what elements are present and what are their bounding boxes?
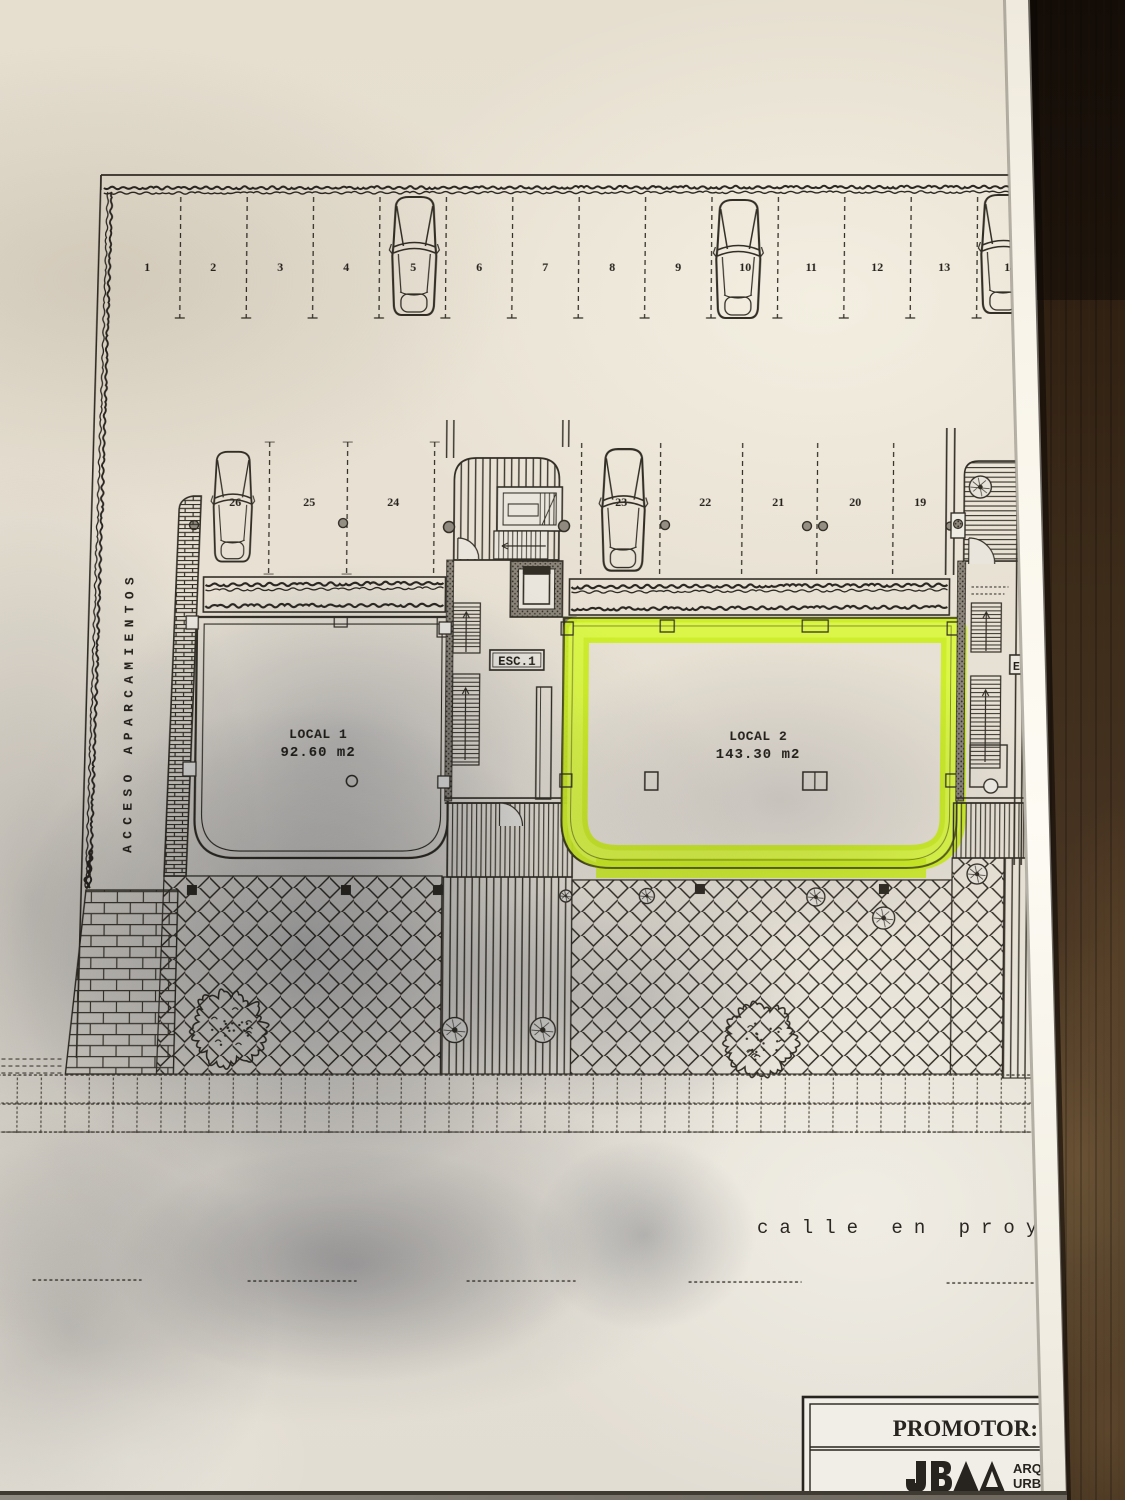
svg-text:13: 13 xyxy=(938,260,950,274)
svg-text:8: 8 xyxy=(609,260,615,274)
svg-text:26: 26 xyxy=(229,495,241,509)
svg-text:12: 12 xyxy=(871,260,883,274)
svg-text:1: 1 xyxy=(144,260,150,274)
svg-text:7: 7 xyxy=(542,260,548,274)
svg-text:ES: ES xyxy=(1013,660,1028,674)
svg-text:92.60 m2: 92.60 m2 xyxy=(280,745,355,761)
svg-text:143.30 m2: 143.30 m2 xyxy=(716,747,801,763)
svg-text:9: 9 xyxy=(675,260,681,274)
svg-text:calle en proy: calle en proy xyxy=(757,1217,1048,1239)
svg-text:25: 25 xyxy=(303,495,315,509)
svg-text:LOCAL 2: LOCAL 2 xyxy=(729,729,787,744)
svg-text:22: 22 xyxy=(699,495,711,509)
svg-text:2: 2 xyxy=(210,260,216,274)
svg-text:5: 5 xyxy=(410,260,416,274)
svg-text:URBAI: URBAI xyxy=(1013,1476,1054,1491)
svg-text:4: 4 xyxy=(343,260,349,274)
svg-text:3: 3 xyxy=(277,260,283,274)
svg-text:19: 19 xyxy=(914,495,926,509)
svg-text:14: 14 xyxy=(1004,260,1016,274)
svg-text:6: 6 xyxy=(476,260,482,274)
svg-text:PROMOTOR:: PROMOTOR: xyxy=(893,1416,1038,1441)
svg-text:21: 21 xyxy=(772,495,784,509)
svg-text:ACCESO APARCAMIENTOS: ACCESO APARCAMIENTOS xyxy=(120,571,137,853)
svg-text:10: 10 xyxy=(739,260,751,274)
svg-text:24: 24 xyxy=(387,495,399,509)
svg-text:ARQUI: ARQUI xyxy=(1013,1461,1055,1476)
svg-text:ESC.1: ESC.1 xyxy=(498,655,536,669)
svg-text:20: 20 xyxy=(849,495,861,509)
svg-text:LOCAL 1: LOCAL 1 xyxy=(289,727,347,742)
svg-text:11: 11 xyxy=(805,260,816,274)
